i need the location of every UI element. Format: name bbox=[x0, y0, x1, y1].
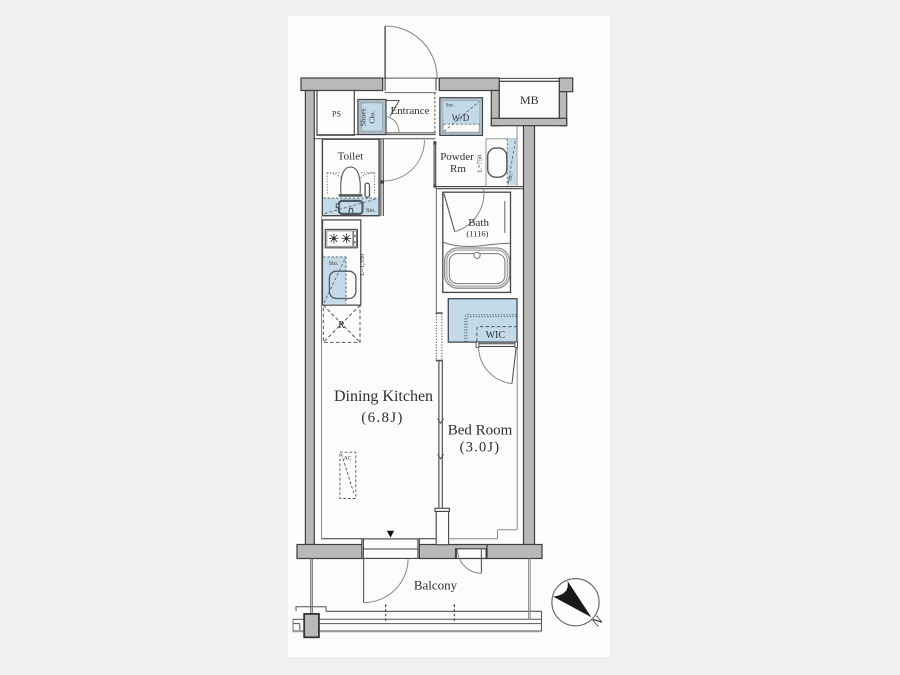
svg-text:Entrance: Entrance bbox=[390, 105, 429, 117]
svg-text:Clo.: Clo. bbox=[368, 111, 377, 124]
svg-text:AC: AC bbox=[344, 456, 352, 462]
svg-text:Bath: Bath bbox=[468, 217, 489, 229]
svg-text:(6.8J): (6.8J) bbox=[361, 410, 403, 426]
svg-text:PS: PS bbox=[332, 110, 341, 119]
svg-text:L=750: L=750 bbox=[476, 155, 483, 172]
svg-text:Shoes: Shoes bbox=[359, 108, 368, 126]
svg-text:L=1,350: L=1,350 bbox=[359, 254, 366, 276]
svg-text:Dining Kitchen: Dining Kitchen bbox=[334, 388, 433, 405]
svg-text:Sto.: Sto. bbox=[329, 261, 339, 267]
svg-text:Bed Room: Bed Room bbox=[448, 423, 513, 439]
svg-text:Powder: Powder bbox=[440, 151, 474, 163]
svg-text:R: R bbox=[338, 320, 345, 331]
svg-text:MB: MB bbox=[520, 93, 539, 107]
svg-text:(3.0J): (3.0J) bbox=[460, 440, 501, 456]
svg-text:WIC: WIC bbox=[486, 330, 506, 341]
svg-text:Toilet: Toilet bbox=[338, 151, 364, 163]
svg-text:(1116): (1116) bbox=[466, 228, 488, 238]
svg-text:W/D: W/D bbox=[452, 113, 470, 123]
svg-text:Balcony: Balcony bbox=[414, 578, 458, 593]
svg-text:Sto.: Sto. bbox=[366, 208, 376, 214]
svg-text:Sto.: Sto. bbox=[445, 103, 454, 109]
svg-text:Rm: Rm bbox=[450, 163, 466, 175]
